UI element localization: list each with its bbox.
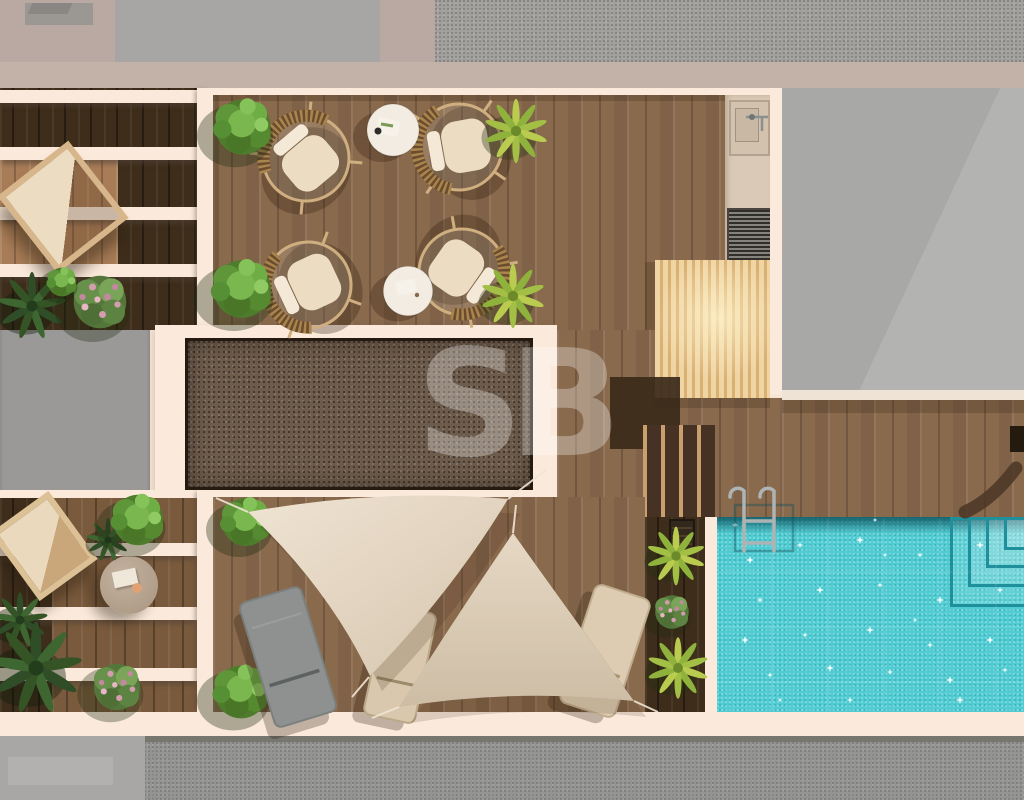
pool-water-pattern xyxy=(719,519,1022,710)
box-hedge xyxy=(194,259,273,331)
curved-bench-shadow xyxy=(965,468,1016,512)
yucca-palm xyxy=(482,99,548,163)
sink-faucet xyxy=(746,114,768,131)
yucca-palm xyxy=(645,527,705,586)
box-hedge xyxy=(96,494,165,557)
scene-overlay: SB xyxy=(0,0,1024,800)
side-table xyxy=(353,104,419,162)
side-table xyxy=(370,266,433,321)
watermark-logo: SB xyxy=(416,318,612,490)
pool-ladder xyxy=(730,488,793,551)
dark-foliage xyxy=(0,622,83,714)
yucca-palm xyxy=(645,637,708,699)
pink-flower-bed xyxy=(643,595,691,637)
box-hedge xyxy=(38,267,78,303)
rooftop-terrace-render: SB xyxy=(0,0,1024,800)
cropped-grill-object xyxy=(1010,426,1024,452)
box-hedge xyxy=(197,98,273,167)
pink-flower-bed xyxy=(77,664,143,722)
